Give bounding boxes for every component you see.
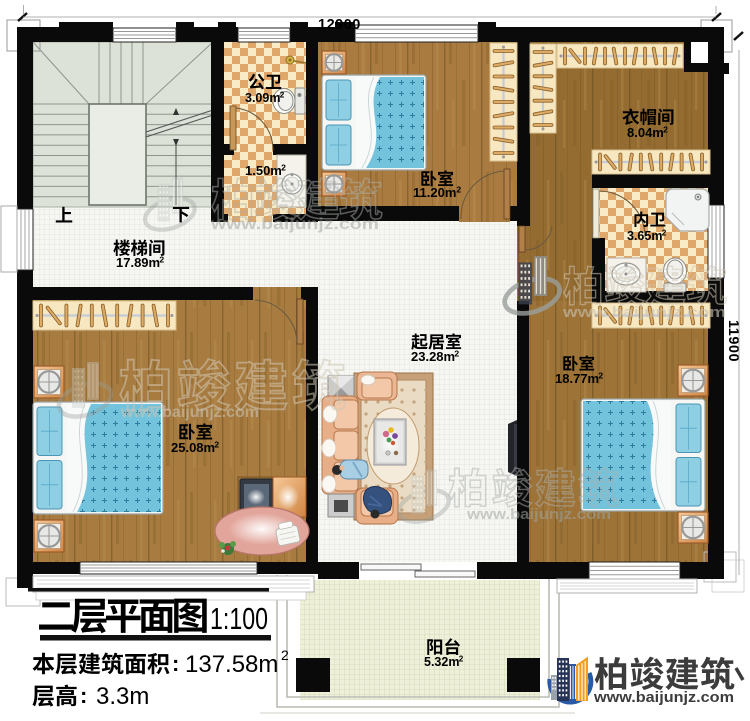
svg-text:www.baijunjz.com: www.baijunjz.com — [120, 404, 259, 421]
svg-text:1:100: 1:100 — [210, 601, 268, 636]
svg-text:11.20m: 11.20m — [413, 185, 456, 200]
svg-text:2: 2 — [662, 229, 667, 238]
svg-text:www.baijunjz.com: www.baijunjz.com — [210, 216, 379, 233]
svg-text:2: 2 — [454, 348, 459, 358]
svg-text:17.89m: 17.89m — [116, 255, 160, 270]
svg-text:12900: 12900 — [318, 17, 361, 33]
svg-text:23.28m: 23.28m — [411, 349, 455, 364]
svg-text:2: 2 — [598, 370, 603, 380]
svg-text::: : — [80, 683, 87, 708]
svg-text:2: 2 — [214, 439, 219, 449]
svg-text:3.3m: 3.3m — [96, 683, 149, 710]
svg-text:2: 2 — [280, 91, 285, 100]
svg-text:2: 2 — [456, 184, 461, 194]
svg-text:2: 2 — [281, 647, 289, 663]
svg-text::: : — [172, 651, 179, 676]
svg-text:8.04m: 8.04m — [627, 125, 664, 140]
svg-text:3.09m: 3.09m — [245, 91, 280, 105]
svg-text:137.58m: 137.58m — [185, 651, 278, 678]
svg-text:25.08m: 25.08m — [171, 440, 215, 455]
svg-text:2: 2 — [281, 162, 286, 172]
svg-text:18.77m: 18.77m — [555, 371, 599, 386]
svg-text:2: 2 — [663, 124, 668, 134]
svg-text:2: 2 — [459, 655, 464, 664]
svg-text:www.baijunjz.com: www.baijunjz.com — [562, 304, 726, 321]
svg-text:3.65m: 3.65m — [627, 229, 662, 243]
svg-text:www.baijunjz.com: www.baijunjz.com — [466, 507, 611, 523]
svg-text:2: 2 — [159, 254, 164, 264]
svg-text:www.baijunjz.com: www.baijunjz.com — [593, 689, 734, 706]
svg-text:5.32m: 5.32m — [424, 655, 459, 669]
svg-text:1.50m: 1.50m — [245, 163, 282, 178]
